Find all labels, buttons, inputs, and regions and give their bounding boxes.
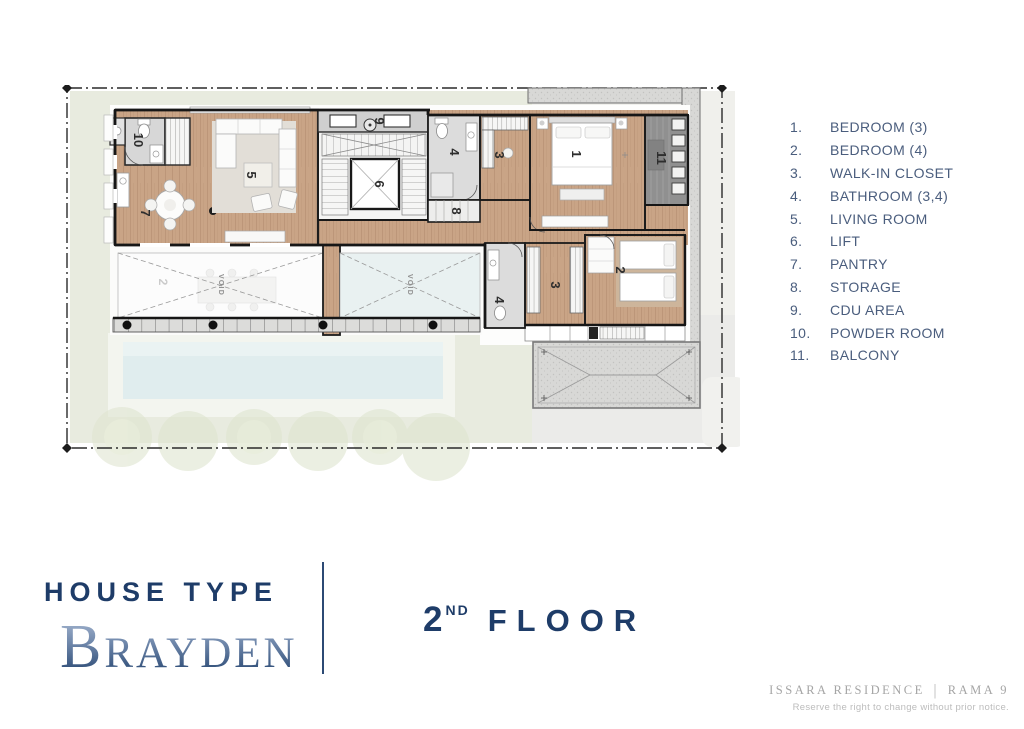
legend-item-number: 7. [790,256,830,272]
sofa-side [279,129,296,187]
label-balcony: 11 [654,151,669,165]
legend-item: 4. BATHROOM (3,4) [790,184,1015,207]
legend-item-label: BATHROOM (3,4) [830,188,948,204]
bench [560,189,604,200]
label-ghost: 2 [156,279,170,286]
legend-item-label: BEDROOM (3) [830,119,928,135]
legend-item-label: LIFT [830,233,860,249]
legend-item-number: 8. [790,279,830,295]
floor-plan: 10 7 5 9 6 8 4 3 1 11 2 3 4 VOID VOID 2 [60,85,740,485]
pillow [664,244,674,266]
stair-core [318,110,428,220]
label-lift: 6 [372,180,387,187]
legend-item: 1. BEDROOM (3) [790,116,1015,139]
legend-item-label: PANTRY [830,256,888,272]
shower [431,173,453,197]
house-name-rest: RAYDEN [104,630,297,677]
project-name-line: ISSARA RESIDENCE|RAMA 9 [769,683,1009,698]
label-walkin-top: 3 [492,151,507,158]
label-void-left: VOID [217,274,224,296]
lower-roof [533,342,700,408]
floor-plan-drawing: 10 7 5 9 6 8 4 3 1 11 2 3 4 VOID VOID 2 [60,85,740,485]
headboard [549,117,615,123]
footer-divider [322,562,324,674]
brochure-page: 10 7 5 9 6 8 4 3 1 11 2 3 4 VOID VOID 2 … [0,0,1024,729]
pillow [664,276,674,298]
legend-item-label: POWDER ROOM [830,325,945,341]
legend-item-label: BEDROOM (4) [830,142,928,158]
legend-item-label: CDU AREA [830,302,905,318]
closet-rack [570,247,583,313]
paved-patch [702,377,740,447]
legend-item: 10. POWDER ROOM [790,321,1015,344]
label-pantry: 7 [138,209,153,216]
vanity [488,250,499,280]
tall-cabinet [165,118,190,165]
pillow [585,127,610,138]
chaise [216,134,236,168]
vanity [150,145,163,163]
label-cdu: 9 [372,117,387,124]
legend-item-number: 4. [790,188,830,204]
vanity [466,123,477,151]
stair-run [322,159,348,215]
project-area: RAMA 9 [948,683,1009,697]
room-bath-bottom [485,243,525,328]
separator-bar: | [934,681,939,701]
house-name-initial: B [60,613,104,681]
legend-item: 5. LIVING ROOM [790,207,1015,230]
legend-item: 11. BALCONY [790,344,1015,367]
legend-item-label: WALK-IN CLOSET [830,165,953,181]
stair-run [402,159,426,215]
legend-item-number: 1. [790,119,830,135]
legend-item-number: 2. [790,142,830,158]
legend-item-number: 6. [790,233,830,249]
label-walkin-bottom: 3 [548,281,563,288]
tv-console [225,231,285,242]
floor-number: 2 [423,600,442,639]
legend-item-number: 10. [790,325,830,341]
legend-item-label: BALCONY [830,347,900,363]
label-bath-bottom: 4 [492,296,507,304]
closet-rack [482,130,494,168]
legend-item-number: 9. [790,302,830,318]
floor-word: FLOOR [488,603,647,638]
house-name: BRAYDEN [60,616,298,678]
terrace-railing [113,318,480,332]
legend-item: 6. LIFT [790,230,1015,253]
house-type-heading: HOUSE TYPE [44,577,278,608]
legend-item-label: LIVING ROOM [830,211,928,227]
legend-item-label: STORAGE [830,279,901,295]
pool-deck [108,333,455,417]
cdu-unit [330,115,356,127]
label-bedroom4: 2 [613,266,628,273]
legend-item: 2. BEDROOM (4) [790,139,1015,162]
label-void-right: VOID [406,274,413,296]
label-storage: 8 [449,207,464,214]
void-areas [113,245,480,335]
label-powder: 10 [131,133,146,147]
disclaimer-text: Reserve the right to change without prio… [793,702,1009,713]
wing-terrace [525,325,685,341]
floor-ordinal: ND [445,602,469,618]
cabinet [588,237,614,273]
legend-item-number: 5. [790,211,830,227]
dresser [542,216,608,227]
louver-units [672,119,685,194]
room-bath-top [428,115,480,200]
boundary-marker [62,443,72,453]
legend-item: 8. STORAGE [790,276,1015,299]
closet-rack [527,247,540,313]
label-bath-top: 4 [447,148,462,156]
sofa-back [216,119,282,134]
legend-item: 3. WALK-IN CLOSET [790,162,1015,185]
floor-title: 2NDFLOOR [423,600,646,640]
toilet [495,306,506,320]
legend-item: 9. CDU AREA [790,298,1015,321]
legend-item: 7. PANTRY [790,253,1015,276]
label-living: 5 [244,171,259,178]
armchair [278,189,298,209]
project-name: ISSARA RESIDENCE [769,683,925,697]
toilet [437,124,448,139]
closet-rack [482,117,528,130]
legend-item-number: 3. [790,165,830,181]
pillow [556,127,581,138]
room-legend: 1. BEDROOM (3) 2. BEDROOM (4) 3. WALK-IN… [790,116,1015,367]
label-bedroom3: 1 [569,150,584,157]
legend-item-number: 11. [790,347,830,363]
